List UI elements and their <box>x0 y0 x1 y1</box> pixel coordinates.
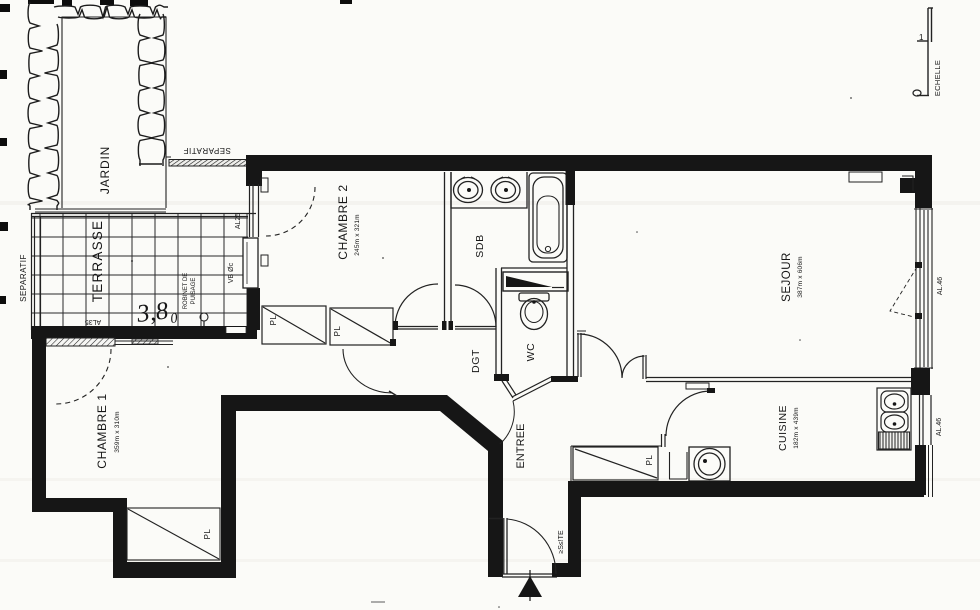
svg-text:WC: WC <box>525 343 537 362</box>
svg-text:DGT: DGT <box>470 349 482 373</box>
svg-text:PL: PL <box>203 529 212 540</box>
svg-text:VB Øc: VB Øc <box>228 262 235 283</box>
svg-text:SEPARATIF: SEPARATIF <box>19 254 28 302</box>
svg-text:3,8: 3,8 <box>134 297 170 328</box>
svg-text:CHAMBRE 1: CHAMBRE 1 <box>95 393 109 468</box>
svg-text:ENTREE: ENTREE <box>515 424 527 469</box>
svg-text:387m x 606m: 387m x 606m <box>797 256 804 298</box>
svg-text:AL.46: AL.46 <box>936 418 943 436</box>
svg-text:PL: PL <box>645 455 654 466</box>
svg-text:SEPARATIF: SEPARATIF <box>183 146 231 155</box>
svg-text:PL: PL <box>333 326 342 337</box>
svg-text:AL25: AL25 <box>235 213 242 229</box>
svg-text:245m x 321m: 245m x 321m <box>354 214 361 256</box>
svg-text:AL.46: AL.46 <box>937 277 944 295</box>
svg-text:182m x 439m: 182m x 439m <box>793 407 800 449</box>
svg-text:SEJOUR: SEJOUR <box>781 252 793 302</box>
svg-text:ROBINET DE: ROBINET DE <box>183 273 189 310</box>
svg-text:1: 1 <box>919 33 924 42</box>
svg-text:SDB: SDB <box>474 234 486 257</box>
svg-text:AL35: AL35 <box>85 318 101 325</box>
svg-text:JARDIN: JARDIN <box>98 146 112 194</box>
svg-text:PL: PL <box>269 315 278 326</box>
svg-text:≥S≤!TE: ≥S≤!TE <box>558 530 565 554</box>
svg-text:359m x 310m: 359m x 310m <box>114 411 121 453</box>
svg-text:CUISINE: CUISINE <box>777 405 789 451</box>
svg-text:TERRASSE: TERRASSE <box>90 220 105 302</box>
svg-text:PUISAGE: PUISAGE <box>191 278 197 305</box>
svg-text:CHAMBRE 2: CHAMBRE 2 <box>336 184 350 259</box>
svg-text:ECHELLE: ECHELLE <box>933 60 942 96</box>
